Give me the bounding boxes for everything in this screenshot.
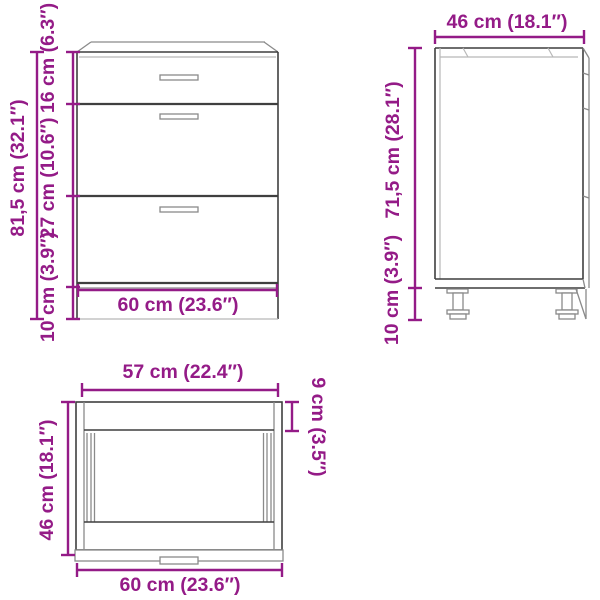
front-width-label: 60 cm (23.6″) <box>118 294 239 316</box>
front-drawer1-handle <box>160 75 198 80</box>
diagram-canvas: 81,5 cm (32.1″) 16 cm (6.3″) 27 cm (10.6… <box>0 0 600 600</box>
front-top-drawer-label: 16 cm (6.3″) <box>37 3 59 113</box>
side-body-height-label: 71,5 cm (28.1″) <box>382 81 404 218</box>
top-total-width-dimension: 60 cm (23.6″) <box>77 563 282 596</box>
front-cabinet-drawing <box>77 42 278 319</box>
side-left-leg <box>447 289 469 319</box>
cabinet-dimensions-diagram: 81,5 cm (32.1″) 16 cm (6.3″) 27 cm (10.6… <box>0 0 600 600</box>
side-right-leg <box>556 289 586 319</box>
front-section-dimensions: 16 cm (6.3″) 27 cm (10.6″) 10 cm (3.9″) <box>37 3 80 342</box>
top-depth-dimension: 46 cm (18.1″) <box>36 402 75 555</box>
side-depth-dimension: 46 cm (18.1″) <box>435 11 584 44</box>
top-back-clearance-dimension: 9 cm (3.5″) <box>285 377 329 476</box>
side-depth-label: 46 cm (18.1″) <box>447 11 568 33</box>
front-view: 81,5 cm (32.1″) 16 cm (6.3″) 27 cm (10.6… <box>7 3 278 342</box>
front-drawer3-handle <box>160 207 198 212</box>
top-front-width-label: 57 cm (22.4″) <box>123 361 244 383</box>
front-width-dimension: 60 cm (23.6″) <box>78 284 277 316</box>
top-depth-label: 46 cm (18.1″) <box>36 420 58 541</box>
top-back-clearance-label: 9 cm (3.5″) <box>307 377 329 476</box>
side-leg-height-label: 10 cm (3.9″) <box>381 235 403 345</box>
top-front-width-dimension: 57 cm (22.4″) <box>82 361 278 397</box>
side-height-dimensions: 71,5 cm (28.1″) 10 cm (3.9″) <box>381 48 422 345</box>
top-cabinet-drawing <box>75 402 283 564</box>
top-view: 57 cm (22.4″) 46 cm (18.1 <box>36 361 329 596</box>
side-cabinet-drawing <box>435 48 589 319</box>
front-leg-height-label: 10 cm (3.9″) <box>37 232 59 342</box>
top-total-width-label: 60 cm (23.6″) <box>120 574 241 596</box>
front-middle-drawer-label: 27 cm (10.6″) <box>37 118 59 239</box>
side-view: 46 cm (18.1″) <box>381 11 589 345</box>
top-handle <box>160 557 198 564</box>
front-total-height-label: 81,5 cm (32.1″) <box>7 99 29 236</box>
front-drawer2-handle <box>160 114 198 119</box>
